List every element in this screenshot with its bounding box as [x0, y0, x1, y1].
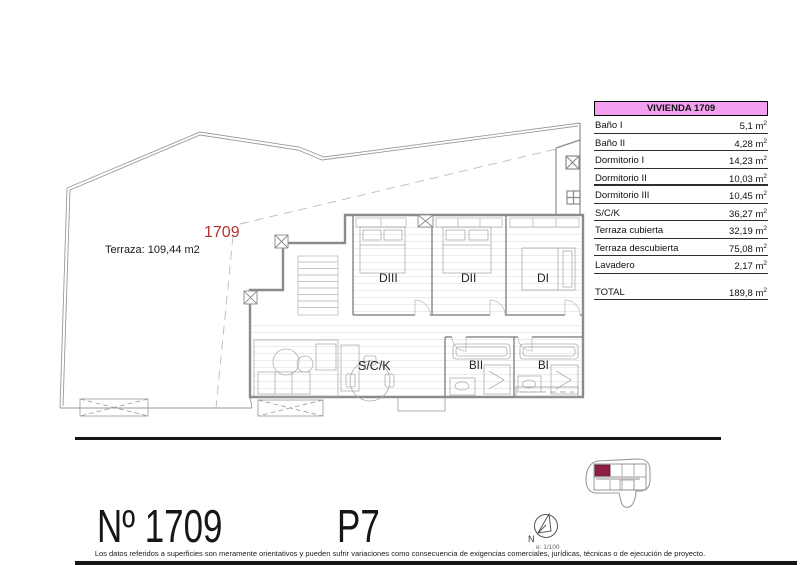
table-row: Dormitorio I 14,23 m2	[594, 151, 768, 169]
room-label-di: DI	[537, 271, 549, 285]
plan-sheet: 1709 Terraza: 109,44 m2 DIII DII DI S/C/…	[0, 0, 800, 565]
table-spacer	[594, 274, 768, 283]
compass-north-label: N	[528, 534, 535, 544]
room-name: Lavadero	[594, 260, 635, 271]
room-name: Terraza descubierta	[594, 243, 678, 254]
stairs	[298, 256, 338, 315]
kitchen-window-icon	[258, 400, 323, 416]
room-area: 10,03 m2	[729, 173, 768, 185]
compass-icon	[535, 514, 558, 538]
terrace-window-icon	[80, 399, 148, 416]
surface-table: VIVIENDA 1709 Baño I 5,1 m2 Baño II 4,28…	[594, 101, 768, 300]
room-area: 75,08 m2	[729, 243, 768, 255]
table-total-row: TOTAL 189,8 m2	[594, 283, 768, 301]
room-area: 36,27 m2	[729, 208, 768, 220]
table-row: Dormitorio III 10,45 m2	[594, 186, 768, 204]
table-row: Baño I 5,1 m2	[594, 116, 768, 134]
room-area: 2,17 m2	[734, 260, 768, 272]
disclaimer-text: Los datos referidos a superficies son me…	[0, 549, 800, 558]
table-row: Lavadero 2,17 m2	[594, 256, 768, 274]
total-area: 189,8 m2	[729, 287, 768, 299]
total-label: TOTAL	[594, 287, 625, 298]
living-floor-hatch	[252, 320, 581, 395]
locator-map	[586, 459, 650, 507]
unit-number-label: 1709	[204, 224, 240, 241]
table-row: Terraza descubierta 75,08 m2	[594, 239, 768, 257]
footer-bar	[75, 561, 797, 565]
room-area: 4,28 m2	[734, 138, 768, 150]
room-area: 14,23 m2	[729, 155, 768, 167]
locator-highlighted-unit	[595, 465, 610, 476]
floor-heading: P7	[337, 499, 380, 553]
room-name: Baño I	[594, 120, 622, 131]
surface-table-title: VIVIENDA 1709	[594, 101, 768, 116]
room-area: 32,19 m2	[729, 225, 768, 237]
laundry-strip	[556, 123, 580, 215]
room-label-bi: BI	[538, 360, 549, 372]
terrace-area-label: Terraza: 109,44 m2	[105, 244, 200, 256]
room-label-sck: S/C/K	[358, 359, 391, 373]
room-name: Dormitorio II	[594, 173, 647, 184]
room-name: Dormitorio III	[594, 190, 649, 201]
room-area: 10,45 m2	[729, 190, 768, 202]
separator-line	[75, 437, 721, 440]
table-row: Terraza cubierta 32,19 m2	[594, 221, 768, 239]
room-name: S/C/K	[594, 208, 620, 219]
room-label-dii: DII	[461, 271, 476, 285]
table-row: Dormitorio II 10,03 m2	[594, 169, 768, 187]
table-row: S/C/K 36,27 m2	[594, 204, 768, 222]
unit-number-heading: Nº 1709	[97, 499, 223, 553]
room-label-diii: DIII	[379, 271, 398, 285]
bedroom-floor-hatch	[353, 222, 581, 314]
terrace-step	[398, 397, 445, 411]
room-label-bii: BII	[469, 360, 483, 372]
room-name: Terraza cubierta	[594, 225, 663, 236]
room-area: 5,1 m2	[740, 120, 768, 132]
room-name: Dormitorio I	[594, 155, 644, 166]
table-row: Baño II 4,28 m2	[594, 134, 768, 152]
room-name: Baño II	[594, 138, 625, 149]
